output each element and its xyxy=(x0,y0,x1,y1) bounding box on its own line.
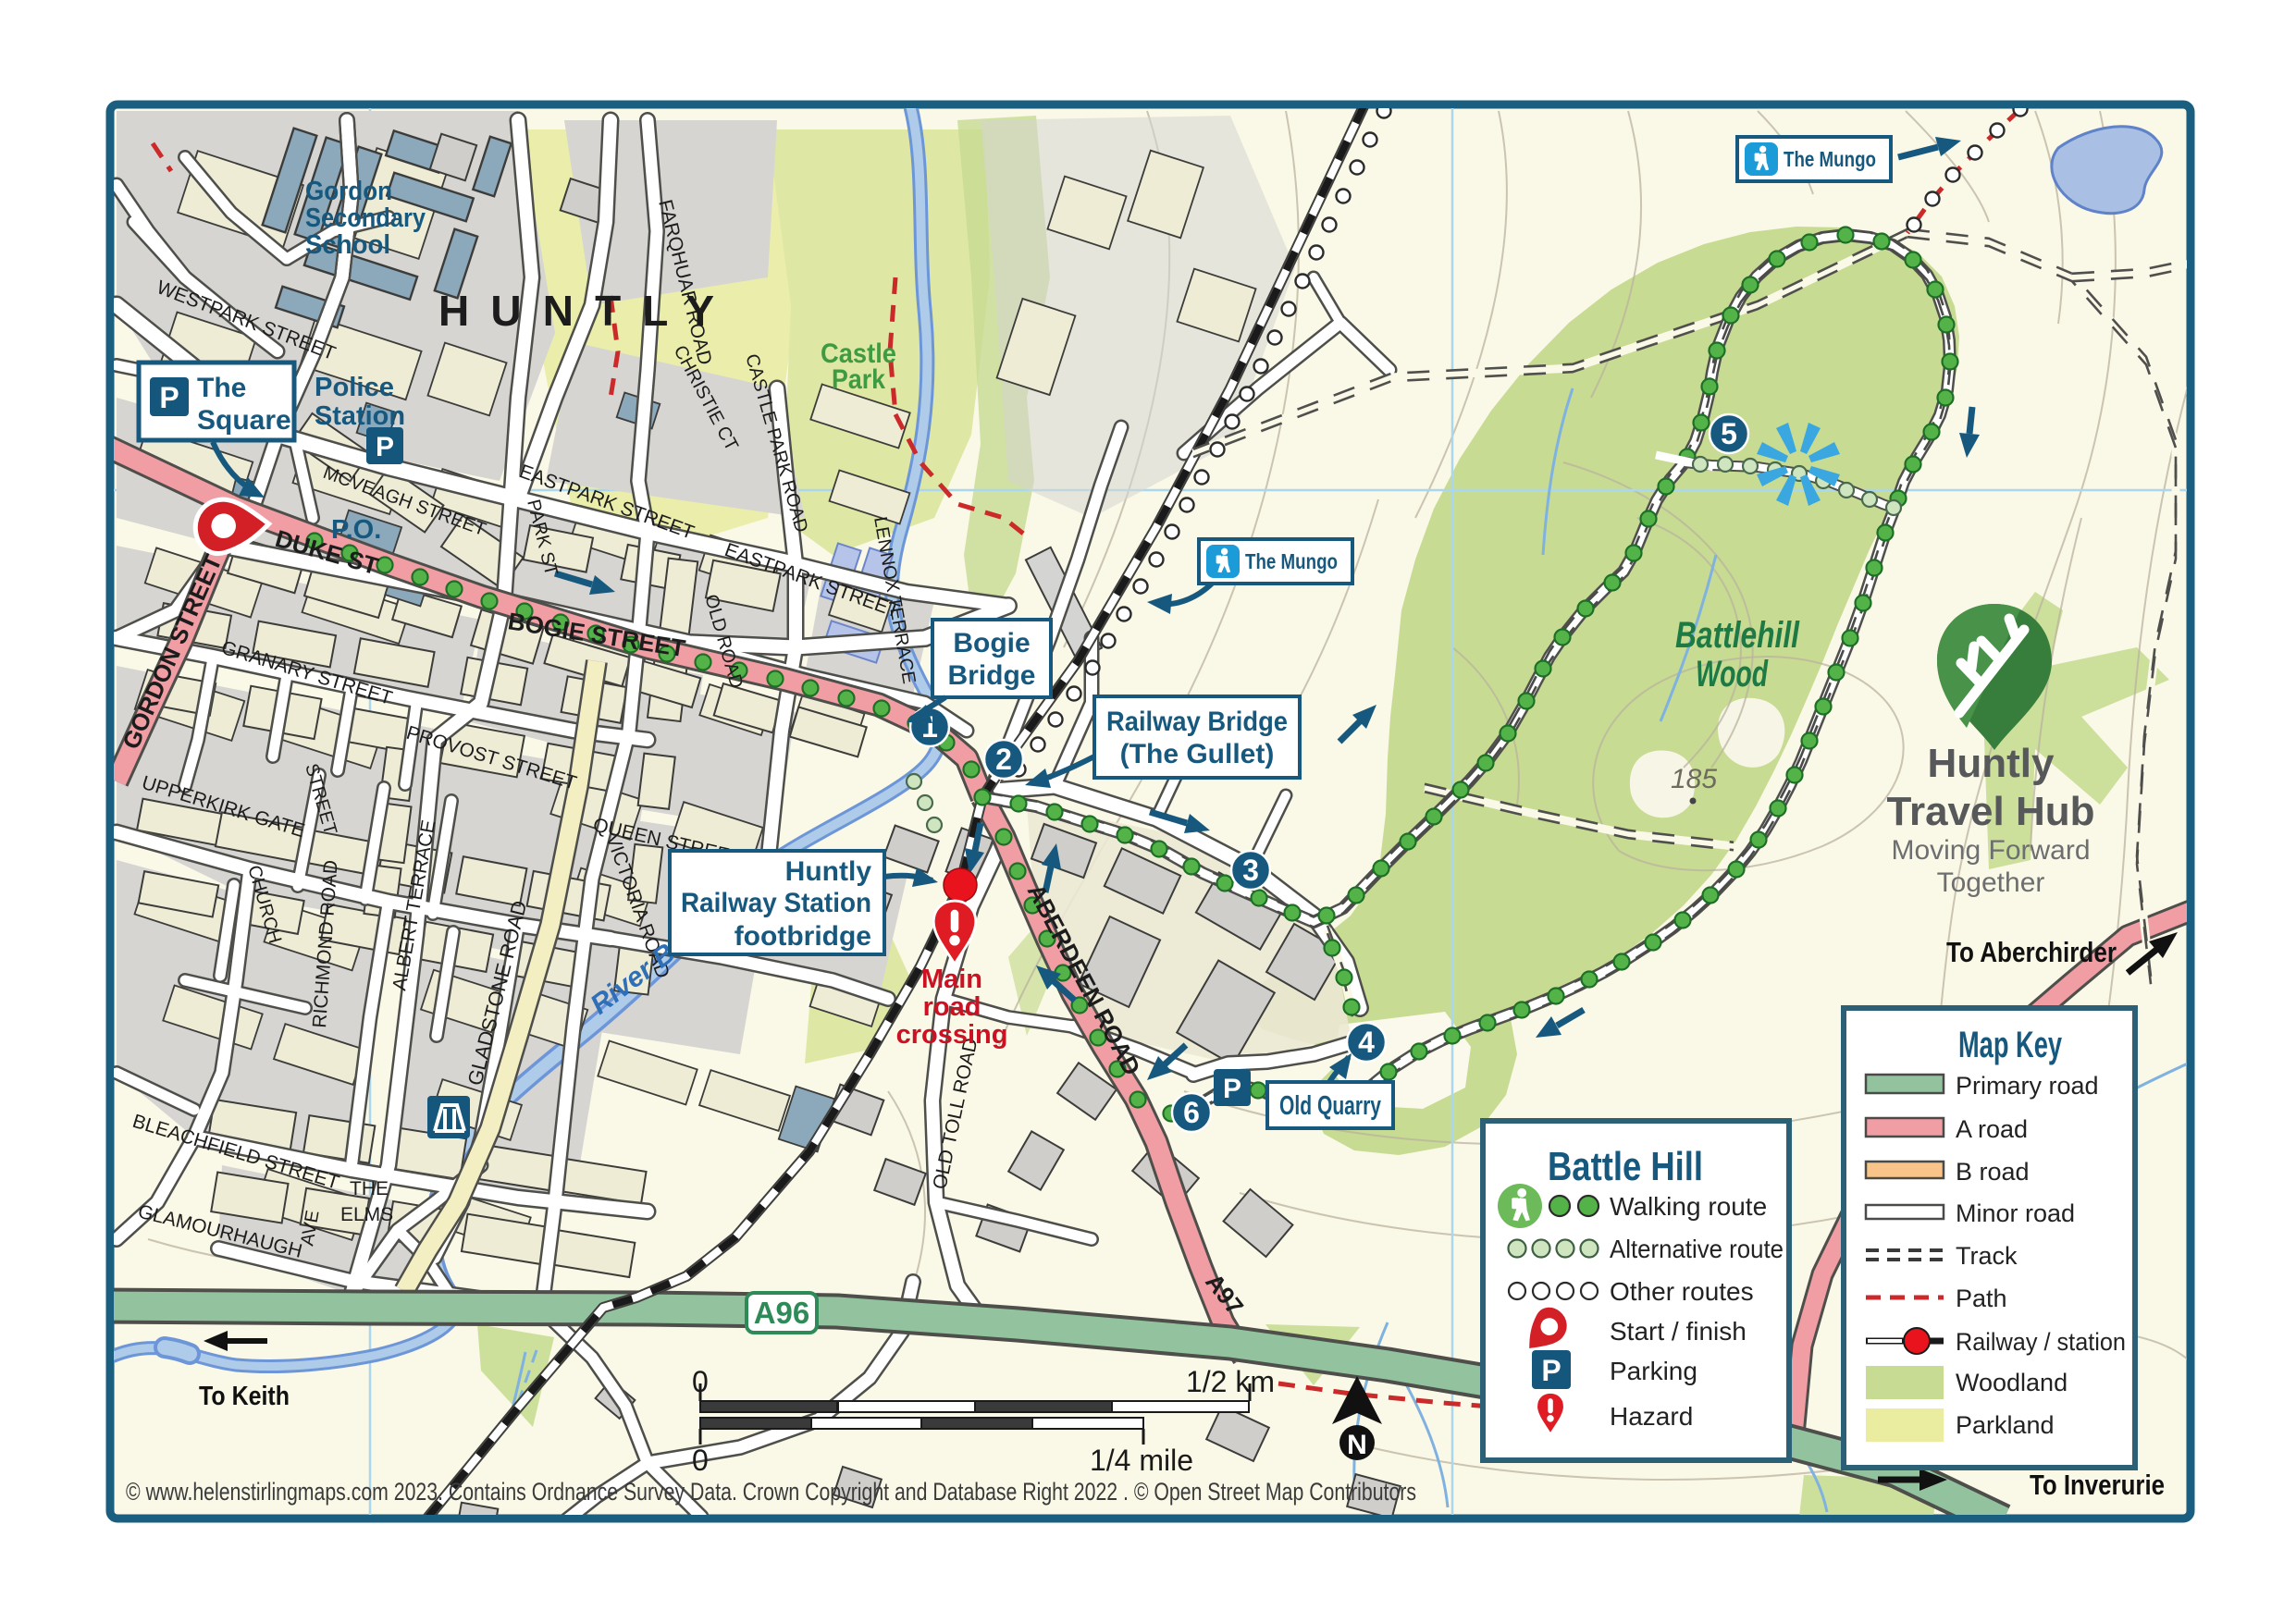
svg-text:Bridge: Bridge xyxy=(947,660,1035,691)
svg-text:Huntly: Huntly xyxy=(1928,741,2055,786)
svg-text:The Mungo: The Mungo xyxy=(1245,549,1338,573)
svg-text:Map Key: Map Key xyxy=(1958,1025,2063,1065)
svg-text:P.O.: P.O. xyxy=(331,515,381,545)
svg-text:Station: Station xyxy=(315,401,405,431)
svg-text:N: N xyxy=(1347,1430,1367,1460)
svg-text:P: P xyxy=(1223,1074,1241,1104)
svg-text:Railway Station: Railway Station xyxy=(681,888,871,918)
svg-text:Walking route: Walking route xyxy=(1610,1192,1767,1221)
svg-text:ELMS: ELMS xyxy=(340,1204,393,1225)
svg-text:Huntly: Huntly xyxy=(785,856,872,887)
svg-text:P: P xyxy=(159,381,179,414)
svg-text:Path: Path xyxy=(1956,1285,2007,1312)
svg-text:crossing: crossing xyxy=(896,1020,1008,1050)
svg-text:Main: Main xyxy=(921,965,982,994)
svg-text:Wood: Wood xyxy=(1696,654,1769,695)
svg-text:2: 2 xyxy=(995,743,1012,776)
svg-text:185: 185 xyxy=(1671,764,1717,794)
svg-text:Square: Square xyxy=(197,405,291,436)
svg-text:Hazard: Hazard xyxy=(1610,1402,1693,1431)
svg-text:footbridge: footbridge xyxy=(734,921,871,952)
svg-text:P: P xyxy=(1541,1354,1561,1387)
svg-text:Track: Track xyxy=(1956,1242,2018,1270)
svg-text:THE: THE xyxy=(350,1178,389,1199)
svg-text:1/2 km: 1/2 km xyxy=(1186,1365,1275,1398)
svg-text:Railway Bridge: Railway Bridge xyxy=(1106,707,1288,737)
svg-text:Police: Police xyxy=(315,373,394,402)
svg-text:Other routes: Other routes xyxy=(1610,1277,1754,1306)
svg-text:4: 4 xyxy=(1358,1026,1375,1059)
svg-text:The Mungo: The Mungo xyxy=(1784,147,1876,171)
svg-text:P: P xyxy=(376,432,394,462)
svg-text:School: School xyxy=(305,230,390,260)
svg-text:Alternative route: Alternative route xyxy=(1610,1235,1784,1263)
svg-text:0: 0 xyxy=(692,1444,709,1477)
svg-text:Battle Hill: Battle Hill xyxy=(1548,1144,1703,1189)
svg-text:6: 6 xyxy=(1183,1096,1200,1129)
svg-text:Gordon: Gordon xyxy=(305,177,392,206)
svg-text:Primary road: Primary road xyxy=(1956,1072,2099,1100)
svg-text:1/4 mile: 1/4 mile xyxy=(1090,1444,1193,1477)
svg-text:© www.helenstirlingmaps.com 20: © www.helenstirlingmaps.com 2023. Contai… xyxy=(126,1478,1416,1506)
svg-text:5: 5 xyxy=(1721,417,1737,450)
svg-text:3: 3 xyxy=(1242,854,1259,887)
svg-text:Start / finish: Start / finish xyxy=(1610,1317,1747,1346)
svg-text:Parking: Parking xyxy=(1610,1357,1697,1385)
svg-text:road: road xyxy=(923,992,981,1022)
svg-text:Parkland: Parkland xyxy=(1956,1411,2055,1439)
svg-text:To Keith: To Keith xyxy=(199,1382,290,1411)
svg-text:Travel Hub: Travel Hub xyxy=(1887,789,2095,834)
svg-text:Old Quarry: Old Quarry xyxy=(1279,1091,1381,1121)
svg-text:Park: Park xyxy=(832,364,885,395)
svg-text:(The Gullet): (The Gullet) xyxy=(1120,739,1275,769)
svg-text:To Inverurie: To Inverurie xyxy=(2030,1469,2165,1501)
svg-text:B road: B road xyxy=(1956,1158,2030,1186)
svg-text:A road: A road xyxy=(1956,1115,2028,1143)
svg-text:Railway / station: Railway / station xyxy=(1956,1328,2126,1356)
svg-text:Woodland: Woodland xyxy=(1956,1369,2068,1396)
svg-text:0: 0 xyxy=(692,1365,709,1398)
svg-text:The: The xyxy=(197,373,246,403)
svg-text:Bogie: Bogie xyxy=(953,628,1030,658)
svg-text:Moving Forward: Moving Forward xyxy=(1891,835,2090,866)
svg-text:Minor road: Minor road xyxy=(1956,1199,2075,1227)
svg-text:To Aberchirder: To Aberchirder xyxy=(1946,936,2117,968)
svg-text:A96: A96 xyxy=(754,1296,810,1330)
svg-text:Together: Together xyxy=(1937,867,2045,898)
svg-text:Battlehill: Battlehill xyxy=(1675,615,1800,656)
svg-text:Secondary: Secondary xyxy=(305,203,426,233)
